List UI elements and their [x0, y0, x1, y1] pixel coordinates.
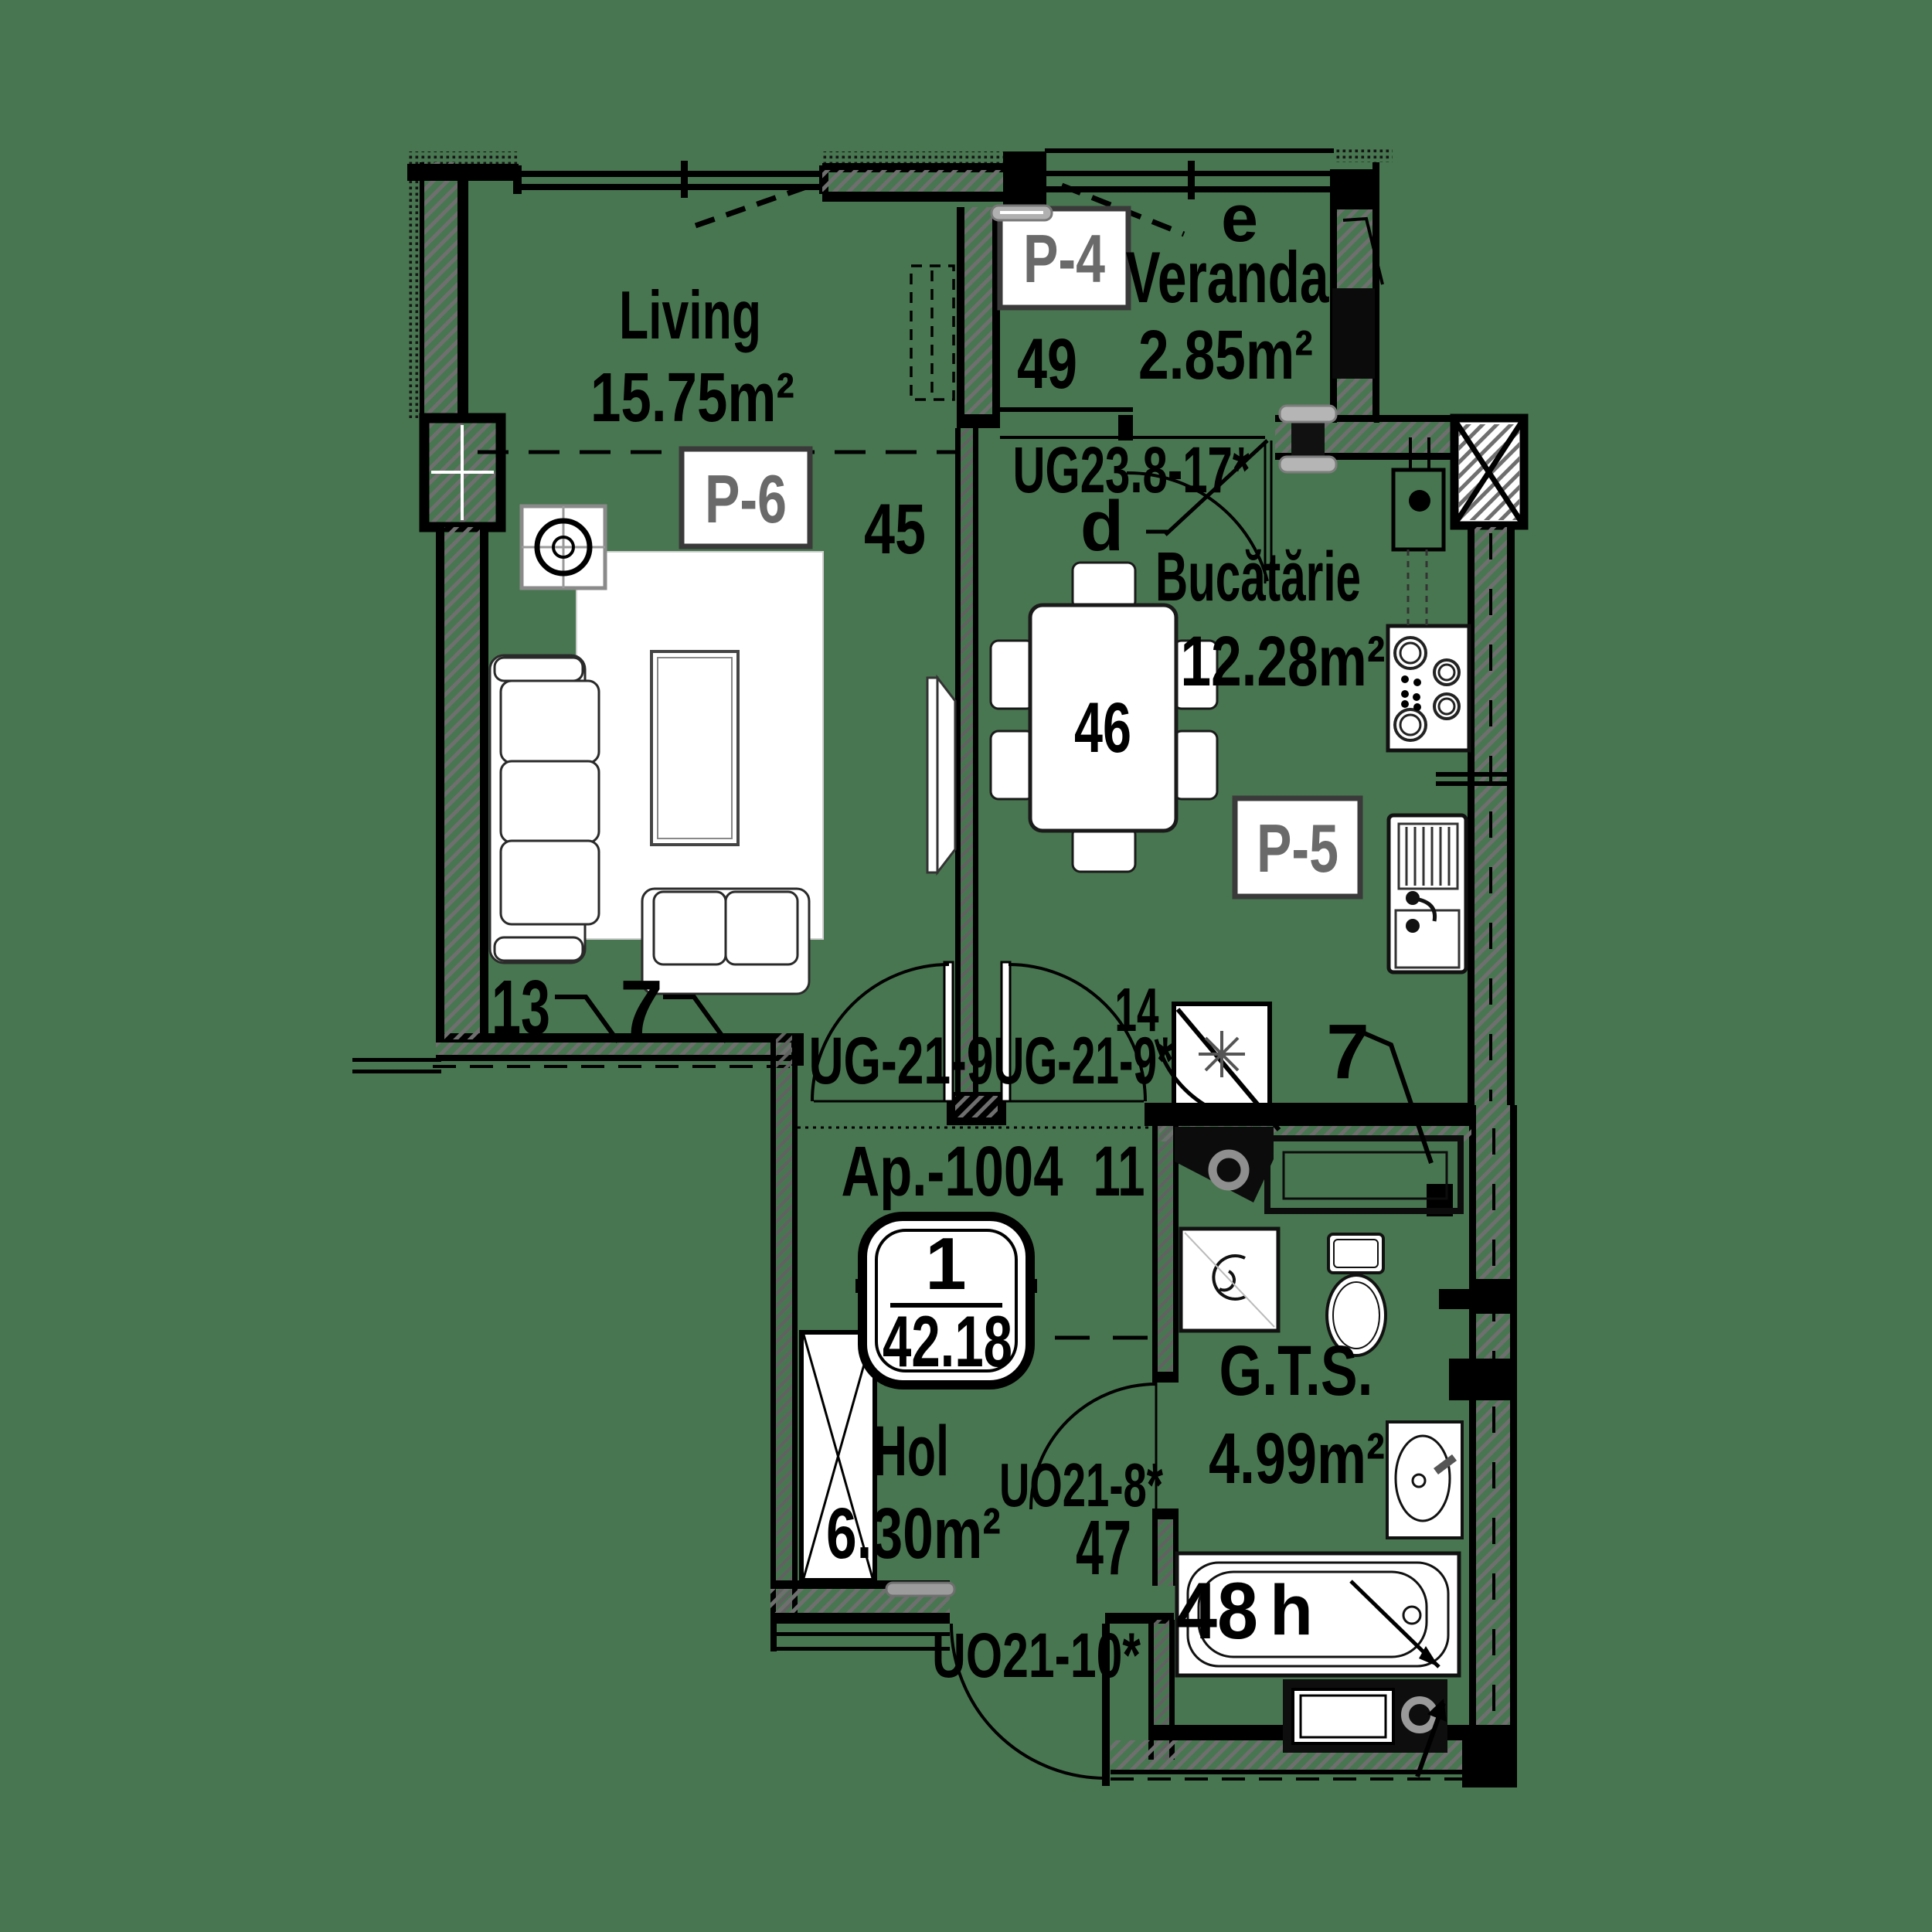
svg-text:15.75m²: 15.75m²	[590, 359, 794, 437]
svg-text:12.28m²: 12.28m²	[1181, 622, 1386, 701]
svg-text:Hol: Hol	[873, 1412, 949, 1491]
svg-text:P-4: P-4	[1023, 220, 1105, 297]
svg-text:42.18: 42.18	[883, 1301, 1012, 1382]
svg-text:G.T.S.: G.T.S.	[1219, 1332, 1373, 1410]
svg-text:4.99m²: 4.99m²	[1209, 1418, 1385, 1498]
svg-text:UO21-10*: UO21-10*	[932, 1621, 1141, 1691]
svg-text:49: 49	[1017, 325, 1077, 403]
svg-text:45: 45	[864, 490, 926, 569]
svg-text:UG23.8-17*: UG23.8-17*	[1013, 434, 1250, 506]
svg-text:2.85m²: 2.85m²	[1138, 317, 1313, 394]
svg-text:48: 48	[1176, 1566, 1258, 1656]
svg-text:6.30m²: 6.30m²	[826, 1493, 1001, 1573]
svg-text:P-5: P-5	[1257, 810, 1338, 886]
svg-text:UG-21-9*: UG-21-9*	[994, 1024, 1174, 1098]
svg-text:13: 13	[492, 964, 550, 1051]
svg-text:Living: Living	[619, 277, 761, 353]
svg-text:UG-21-9: UG-21-9	[809, 1024, 994, 1098]
svg-text:h: h	[1270, 1571, 1313, 1650]
svg-text:1: 1	[925, 1223, 966, 1305]
svg-text:7: 7	[620, 964, 663, 1051]
svg-text:e: e	[1221, 182, 1258, 256]
svg-text:47: 47	[1076, 1505, 1131, 1591]
svg-text:46: 46	[1074, 689, 1131, 767]
svg-text:Bucătărie: Bucătărie	[1155, 539, 1361, 616]
svg-text:7: 7	[1326, 1009, 1369, 1095]
svg-text:11: 11	[1094, 1132, 1145, 1211]
svg-text:Ap.-1004: Ap.-1004	[842, 1132, 1063, 1211]
svg-text:P-6: P-6	[705, 461, 787, 537]
